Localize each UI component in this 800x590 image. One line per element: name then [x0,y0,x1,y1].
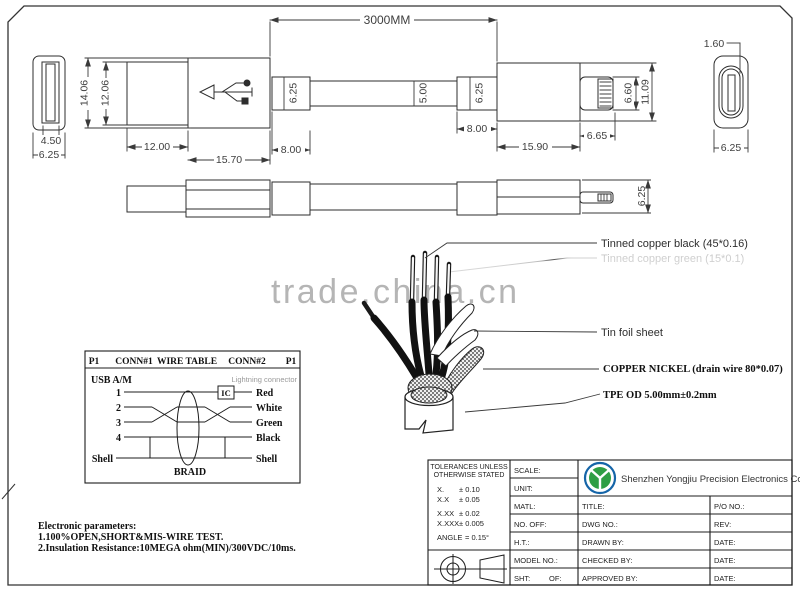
wire-table-pin-2: 2 [116,403,121,414]
field-no-off: NO. OFF: [514,520,547,529]
dimension-texts: 4.50 6.25 14.06 12.06 12.00 15.70 3000MM… [38,13,744,166]
usb-trident-icon [200,80,252,104]
usb-a-side-view [127,58,270,128]
tolerance-label-xxxx: X.XXX [437,519,459,528]
dim-usb-outer-width: 6.25 [39,149,60,161]
wire-table-conn2: CONN#2 [228,357,266,367]
electronic-parameters: Electronic parameters: 1.100%OPEN,SHORT&… [38,521,296,554]
electronic-parameters-title: Electronic parameters: [38,521,136,532]
wire-table-pin-3: 3 [116,418,121,429]
wire-table-pin-4: 4 [116,433,121,444]
field-date-approved: DATE: [714,574,736,583]
wire-table-title: WIRE TABLE [157,357,217,367]
cable-side-view [272,77,497,110]
dim-end-tongue-width: 1.60 [704,38,725,50]
dim-right-relief-height: 6.25 [474,83,486,104]
callout-copper-nickel-label: COPPER NICKEL (drain wire 80*0.07) [603,364,783,375]
wire-table-shell-right: Shell [256,454,277,465]
dim-right-mold-height: 11.09 [640,79,652,105]
dim-left-relief-length: 8.00 [281,144,302,156]
field-scale: SCALE: [514,466,541,475]
dim-end-body-width: 6.25 [721,142,742,154]
callout-copper-black-label: Tinned copper black (45*0.16) [601,238,748,250]
dim-pin-height: 6.60 [623,83,635,104]
wire-table-conn1: CONN#1 [115,357,153,367]
field-sht: SHT: [514,574,530,583]
electronic-parameters-item-1: 1.100%OPEN,SHORT&MIS-WIRE TEST. [38,532,224,543]
dim-usb-mold-length: 15.70 [216,154,242,166]
field-drawn-by: DRAWN BY: [582,538,624,547]
dim-usb-tongue-width: 4.50 [41,135,62,147]
field-dwg-no: DWG NO.: [582,520,618,529]
tolerance-label-xx: X.X [437,495,449,504]
dim-right-relief-length: 8.00 [467,123,488,135]
electronic-parameters-item-2: 2.Insulation Resistance:10MEGA ohm(MIN)/… [38,543,296,554]
field-of: OF: [549,574,562,583]
field-model-no: MODEL NO.: [514,556,558,565]
company-name: Shenzhen Yongjiu Precision Electronics C… [621,474,800,485]
field-approved-by: APPROVED BY: [582,574,637,583]
tolerance-block: TOLERANCES UNLESS OTHERWISE STATED X. ± … [430,464,508,542]
tolerance-value-x: ± 0.10 [459,485,480,494]
tolerance-heading-1: TOLERANCES UNLESS [430,464,508,471]
field-matl: MATL: [514,502,536,511]
dim-usb-shell-height: 12.06 [100,80,112,106]
callout-tin-foil-label: Tin foil sheet [601,327,663,339]
dim-usb-mold-height: 14.06 [79,80,91,106]
tolerance-label-x: X. [437,485,444,494]
company-logo-icon [585,463,615,493]
lightning-side-view [497,63,613,121]
wire-table-ic-label: IC [221,388,230,398]
lightning-end-view [714,56,748,128]
tolerance-value-angle: = 0.15° [465,533,489,542]
wire-table-p1-right: P1 [286,357,297,367]
wire-table-color-red: Red [256,388,274,399]
dim-overall-length: 3000MM [364,13,411,27]
wire-table: P1 CONN#1 WIRE TABLE CONN#2 P1 USB A/M L… [85,351,300,483]
wire-table-color-white: White [256,403,283,414]
tolerance-value-xxxx: ± 0.005 [459,519,484,528]
tolerance-label-angle: ANGLE [437,533,462,542]
tolerance-value-xxx: ± 0.02 [459,509,480,518]
tolerance-heading-2: OTHERWISE STATED [434,472,505,479]
usb-a-front-view [33,56,65,130]
wire-table-braid-label: BRAID [174,467,206,478]
wire-table-color-green: Green [256,418,283,429]
tolerance-label-xxx: X.XX [437,509,454,518]
wire-table-shell-left: Shell [92,454,113,465]
wire-table-left-connector: USB A/M [91,375,132,386]
watermark: trade.china.cn [252,247,760,311]
dim-side-view-height: 6.25 [636,186,648,207]
field-title: TITLE: [582,502,605,511]
watermark-text: trade.china.cn [271,273,520,311]
dim-cable-od: 5.00 [418,83,430,104]
tolerance-value-xx: ± 0.05 [459,495,480,504]
projection-symbol-icon [434,554,507,584]
assembly-second-view [127,180,651,217]
field-date-checked: DATE: [714,556,736,565]
field-date-drawn: DATE: [714,538,736,547]
dim-usb-shell-length: 12.00 [144,141,170,153]
field-rev: REV: [714,520,731,529]
dim-right-mold-length: 15.90 [522,141,548,153]
drawing-sheet: 4.50 6.25 14.06 12.06 12.00 15.70 3000MM… [0,0,800,590]
field-unit: UNIT: [514,484,533,493]
field-checked-by: CHECKED BY: [582,556,632,565]
field-ht: H.T.: [514,538,529,547]
field-po-no: P/O NO.: [714,502,744,511]
title-block: TOLERANCES UNLESS OTHERWISE STATED X. ± … [428,460,800,585]
dim-left-relief-height: 6.25 [288,83,300,104]
callout-tpe-label: TPE OD 5.00mm±0.2mm [603,390,717,401]
wire-table-right-connector: Lightning connector [232,375,298,384]
wire-table-p1-left: P1 [89,357,100,367]
wire-table-pin-1: 1 [116,388,121,399]
dim-pin-length: 6.65 [587,130,608,142]
wire-table-color-black: Black [256,433,281,444]
